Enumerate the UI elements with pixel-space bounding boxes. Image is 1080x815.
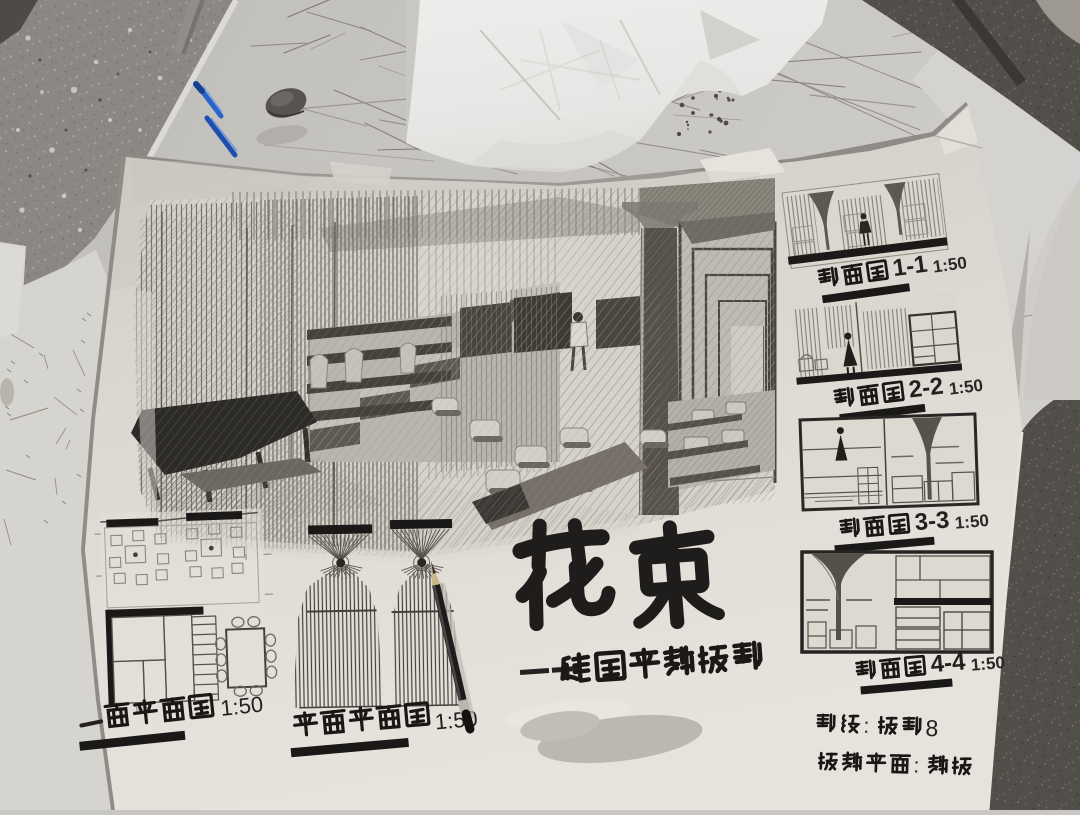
svg-text:1:50: 1:50 (970, 653, 1006, 675)
svg-text::: : (863, 715, 870, 738)
svg-text::: : (913, 754, 920, 777)
svg-text:8: 8 (925, 715, 939, 741)
svg-text:2-2: 2-2 (907, 373, 945, 404)
svg-text:1:50: 1:50 (219, 691, 264, 720)
svg-text:4-4: 4-4 (930, 648, 968, 678)
svg-text:1:50: 1:50 (954, 511, 990, 533)
svg-text:1-1: 1-1 (891, 251, 929, 283)
svg-text:3-3: 3-3 (914, 506, 951, 536)
